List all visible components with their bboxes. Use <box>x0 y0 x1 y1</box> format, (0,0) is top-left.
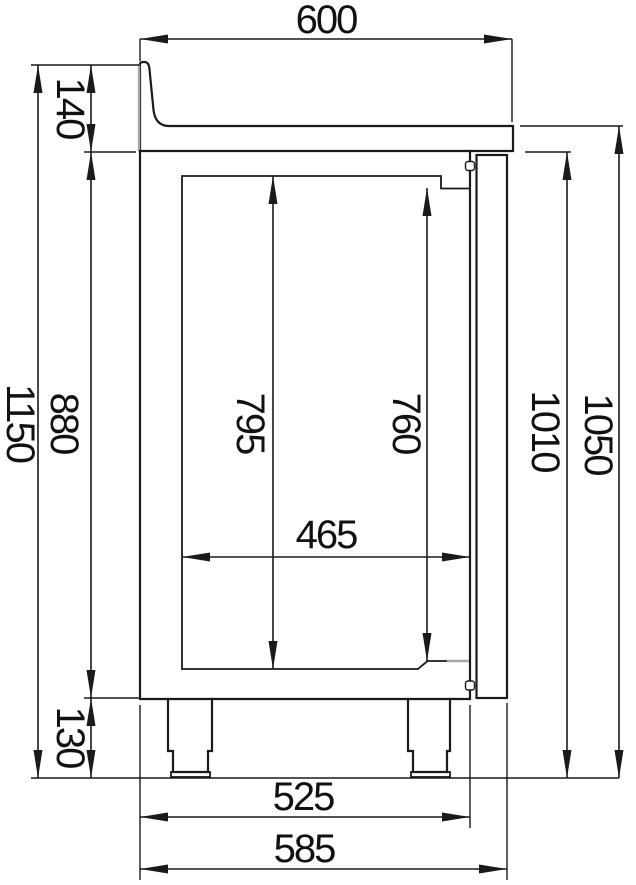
dim-1010: 1010 <box>523 152 572 778</box>
hinge-top <box>466 162 475 171</box>
dim-585-arrow-right <box>479 865 507 874</box>
dim-1150-arrow-up <box>34 65 43 93</box>
dim-465-arrow-right <box>442 553 470 562</box>
dim-760: 760 <box>384 188 432 661</box>
dim-880: 880 <box>42 152 140 698</box>
dim-525-arrow-left <box>140 813 168 822</box>
legs <box>168 699 450 777</box>
dim-1150-label: 1150 <box>0 384 42 463</box>
dim-130: 130 <box>48 698 96 778</box>
right-leg <box>408 699 450 772</box>
dim-1050-arrow-up <box>615 126 624 154</box>
dim-880-arrow-down <box>87 670 96 698</box>
dim-1050-arrow-down <box>615 750 624 778</box>
dim-760-arrow-up <box>423 188 432 216</box>
dim-1010-arrow-up <box>563 152 572 180</box>
dim-130-label: 130 <box>48 707 92 768</box>
dim-525-label: 525 <box>273 775 334 819</box>
dim-760-label: 760 <box>384 393 428 454</box>
dim-795: 795 <box>228 176 278 669</box>
dim-1050-label: 1050 <box>576 394 620 476</box>
left-foot-plate <box>171 772 210 777</box>
dim-600-label: 600 <box>296 0 357 42</box>
door <box>466 155 508 698</box>
drawing-svg: 600 140 1150 880 130 795 <box>0 0 636 885</box>
dim-795-arrow-down <box>269 641 278 669</box>
left-leg <box>168 699 212 772</box>
dim-880-arrow-up <box>87 152 96 180</box>
technical-drawing-canvas: 600 140 1150 880 130 795 <box>0 0 636 885</box>
dim-140: 140 <box>31 65 140 152</box>
dim-880-label: 880 <box>42 393 86 454</box>
dim-525-arrow-right <box>442 813 470 822</box>
dim-585-label: 585 <box>274 827 335 871</box>
dim-1150: 1150 <box>0 65 43 778</box>
door-panel <box>477 155 508 698</box>
hinge-bottom <box>466 681 475 690</box>
dim-795-label: 795 <box>228 393 272 454</box>
dim-795-arrow-up <box>269 176 278 204</box>
dim-465-arrow-left <box>182 553 210 562</box>
right-foot-plate <box>411 772 450 777</box>
worktop-with-upstand <box>139 62 513 151</box>
dim-600: 600 <box>140 0 512 122</box>
worktop-outline <box>140 62 513 151</box>
dim-1010-label: 1010 <box>523 391 567 473</box>
dim-1150-arrow-down <box>34 750 43 778</box>
dim-760-arrow-down <box>423 633 432 661</box>
dim-600-arrow-right <box>484 35 512 44</box>
dim-1010-arrow-down <box>563 750 572 778</box>
dim-585-arrow-left <box>140 865 168 874</box>
dim-140-label: 140 <box>48 78 92 139</box>
dim-465-label: 465 <box>296 513 357 557</box>
dim-600-arrow-left <box>140 35 168 44</box>
